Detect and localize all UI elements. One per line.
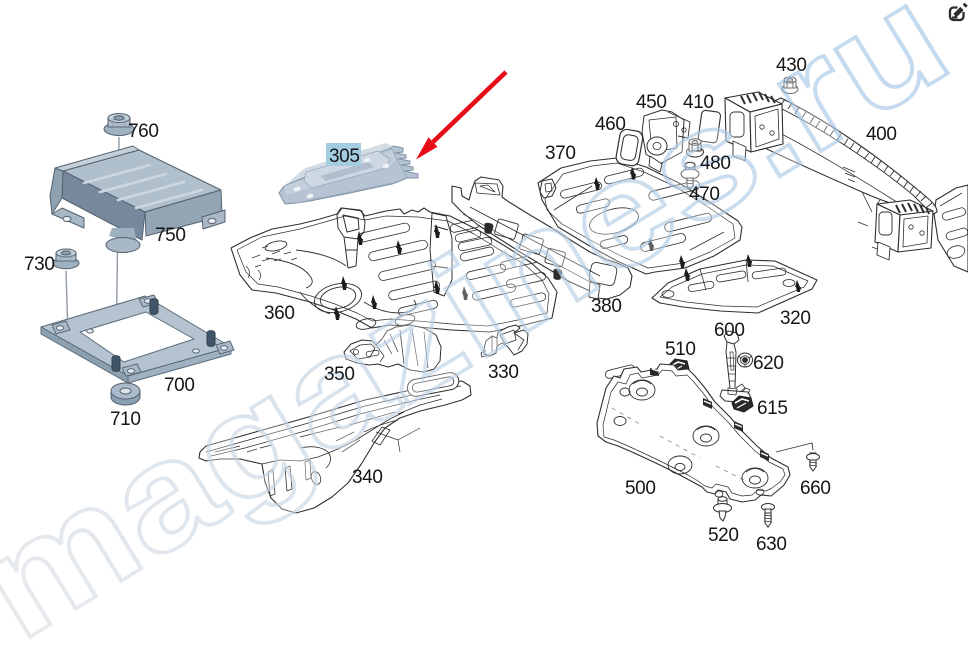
svg-text:730: 730 (24, 254, 55, 275)
svg-text:500: 500 (625, 478, 656, 499)
svg-text:630: 630 (756, 534, 787, 555)
svg-text:320: 320 (780, 308, 811, 329)
svg-text:380: 380 (591, 296, 622, 317)
svg-text:760: 760 (128, 121, 159, 142)
svg-text:615: 615 (757, 398, 788, 419)
svg-text:340: 340 (352, 467, 383, 488)
svg-text:470: 470 (689, 184, 720, 205)
svg-text:400: 400 (866, 124, 897, 145)
svg-text:510: 510 (665, 339, 696, 360)
svg-text:520: 520 (708, 525, 739, 546)
svg-text:410: 410 (683, 92, 714, 113)
svg-text:330: 330 (488, 362, 519, 383)
svg-text:710: 710 (110, 409, 141, 430)
svg-text:600: 600 (714, 320, 745, 341)
svg-text:370: 370 (545, 143, 576, 164)
svg-text:480: 480 (700, 153, 731, 174)
svg-text:460: 460 (595, 114, 626, 135)
svg-text:305: 305 (329, 146, 360, 167)
svg-text:700: 700 (164, 375, 195, 396)
svg-text:430: 430 (776, 55, 807, 76)
svg-text:450: 450 (636, 92, 667, 113)
svg-text:350: 350 (324, 364, 355, 385)
svg-text:620: 620 (753, 353, 784, 374)
svg-text:660: 660 (800, 478, 831, 499)
svg-text:360: 360 (264, 303, 295, 324)
svg-text:750: 750 (155, 225, 186, 246)
